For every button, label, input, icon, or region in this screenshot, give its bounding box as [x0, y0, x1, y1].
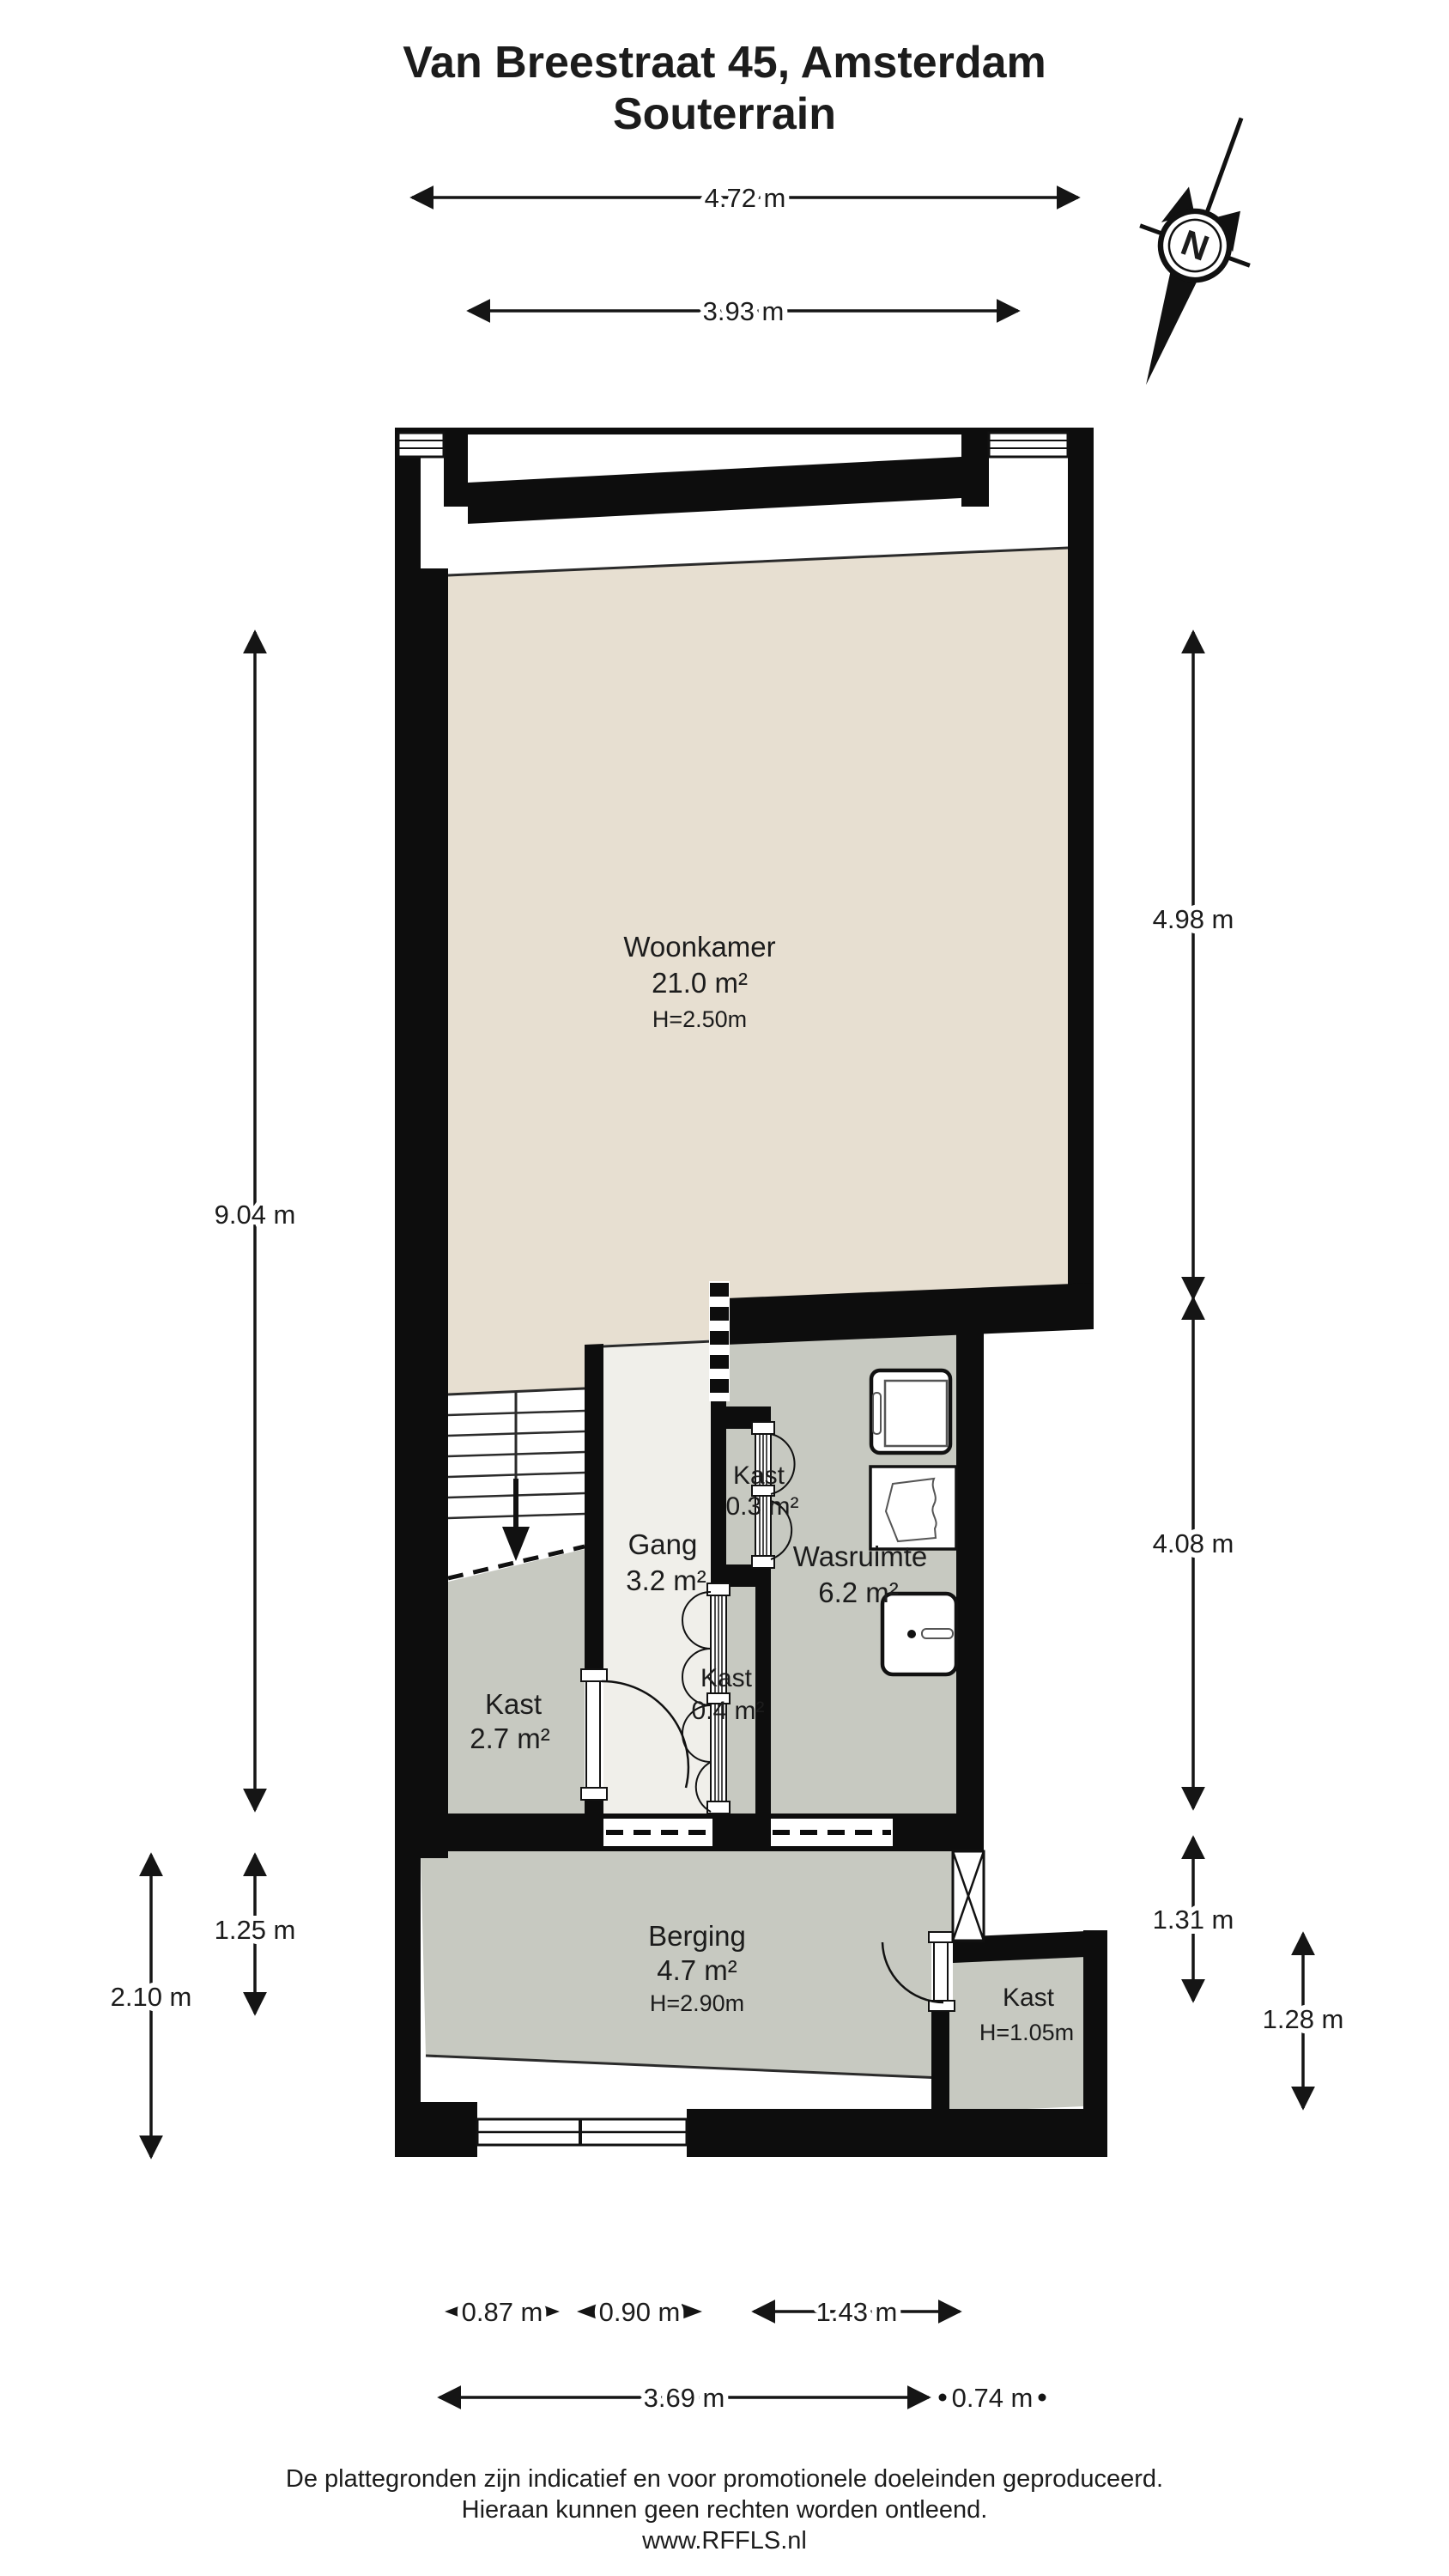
room-label-berging: Berging [648, 1920, 746, 1952]
floorplan-page: Woonkamer 21.0 m² H=2.50m Gang 3.2 m² Ka… [0, 0, 1449, 2576]
right-lightwell [984, 1329, 1107, 1944]
room-height-berging: H=2.90m [650, 1990, 744, 2016]
left-outer-wall [395, 431, 421, 2109]
title-block: Van Breestraat 45, Amsterdam Souterrain [403, 38, 1046, 139]
room-area-wasruimte: 6.2 m² [818, 1577, 899, 1608]
page-title: Van Breestraat 45, Amsterdam [403, 38, 1046, 88]
room-label-gang: Gang [628, 1528, 698, 1560]
dim-left-9-04-label: 9.04 m [215, 1200, 296, 1230]
room-area-kast-gang: 0.4 m² [691, 1697, 764, 1725]
dim-dot-left [939, 2394, 947, 2402]
dim-bottom-0-87-label: 0.87 m [462, 2297, 543, 2327]
dim-right-1-28-label: 1.28 m [1263, 2004, 1344, 2034]
dim-bottom-3-69-label: 3.69 m [644, 2383, 725, 2413]
dim-bottom-1-43-label: 1.43 m [816, 2297, 898, 2327]
dim-left-2-10-label: 2.10 m [111, 1982, 192, 2012]
dim-b2-arrow-left [577, 2304, 597, 2319]
compass-tail [1131, 268, 1198, 389]
compass-needle [1205, 118, 1241, 217]
floorplan-drawing: Woonkamer 21.0 m² H=2.50m Gang 3.2 m² Ka… [0, 0, 1449, 2576]
dim-dot-right [1039, 2394, 1046, 2402]
fixtures [870, 1370, 956, 1674]
dim-bottom-0-74-label: 0.74 m [952, 2383, 1034, 2413]
kast-trap-floor [448, 1549, 585, 1814]
dim-left-1-25-label: 1.25 m [215, 1915, 296, 1945]
dim-right-4-98-label: 4.98 m [1153, 904, 1234, 934]
room-label-kast-klein: Kast [733, 1461, 785, 1490]
gang-stairs-wall-upper [585, 1344, 603, 1679]
dim-bottom-0-90-label: 0.90 m [599, 2297, 681, 2327]
footer-disclaimer-1: De plattegronden zijn indicatief en voor… [286, 2465, 1163, 2493]
compass-tick-west [1140, 226, 1162, 234]
front-facade-wall [468, 457, 961, 524]
wasruimte-right-wall [956, 1319, 984, 1851]
dim-top-3-93-label: 3.93 m [703, 296, 785, 326]
room-height-woonkamer: H=2.50m [652, 1006, 747, 1032]
dim-right-4-08-label: 4.08 m [1153, 1528, 1234, 1558]
washing-machine-icon [871, 1370, 950, 1453]
room-height-kast-berging: H=1.05m [979, 2020, 1074, 2045]
room-label-kast-berging: Kast [1003, 1984, 1055, 2012]
room-label-woonkamer: Woonkamer [623, 931, 775, 963]
window-top-left [398, 433, 444, 457]
room-area-woonkamer: 21.0 m² [652, 967, 748, 999]
shaft-box [953, 1851, 984, 1941]
room-label-kast-trap: Kast [485, 1688, 542, 1720]
room-label-kast-gang: Kast [700, 1664, 753, 1692]
compass-tick-east [1228, 258, 1250, 266]
kast-klein-left-wall [711, 1400, 726, 1587]
page-subtitle: Souterrain [613, 89, 836, 139]
room-area-kast-trap: 2.7 m² [470, 1722, 550, 1754]
window-bottom [477, 2119, 687, 2145]
window-top-right [989, 433, 1068, 457]
top-left-pillar [444, 431, 468, 507]
footer-block: De plattegronden zijn indicatief en voor… [286, 2465, 1163, 2555]
dim-right-1-31-label: 1.31 m [1153, 1905, 1234, 1935]
footer-disclaimer-2: Hieraan kunnen geen rechten worden ontle… [462, 2496, 988, 2524]
bottom-wall [687, 2109, 1107, 2157]
sink-icon [870, 1467, 956, 1549]
footer-website: www.RFFLS.nl [641, 2527, 807, 2555]
room-label-wasruimte: Wasruimte [793, 1540, 927, 1572]
kast-berging-left-wall [931, 2004, 949, 2112]
room-area-gang: 3.2 m² [626, 1564, 706, 1596]
dim-b2-arrow-right [682, 2304, 702, 2319]
dim-top-4-72-label: 4.72 m [705, 183, 786, 213]
left-inner-wall [421, 568, 448, 1858]
compass-rose: N [1089, 98, 1296, 404]
room-area-berging: 4.7 m² [657, 1954, 737, 1986]
room-area-kast-klein: 0.3 m² [725, 1492, 798, 1521]
right-outer-wall [1068, 431, 1094, 1329]
bottom-left-wall-block [395, 2102, 477, 2157]
top-right-pillar [961, 431, 989, 507]
